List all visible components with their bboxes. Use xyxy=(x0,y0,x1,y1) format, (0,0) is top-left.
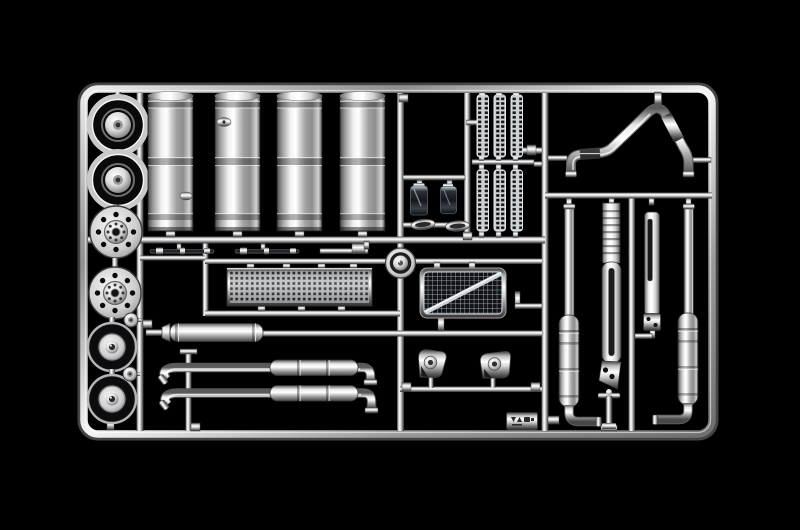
fuel-tank xyxy=(215,92,260,232)
hub-cover xyxy=(90,205,142,258)
fuel-tank xyxy=(277,92,322,232)
fuel-tank xyxy=(340,92,385,232)
fuel-tank xyxy=(148,92,193,232)
radiator-grille xyxy=(420,268,506,318)
step-panel xyxy=(411,183,428,215)
strip-row-top xyxy=(477,95,523,157)
stack-shield-short xyxy=(644,212,661,331)
catwalk-plate xyxy=(227,268,372,306)
chrome-sprue-photo xyxy=(0,0,800,530)
sprue-image xyxy=(0,0,800,530)
mould-tag xyxy=(507,413,538,430)
stack-shield-long xyxy=(599,203,621,389)
tank-end-cap xyxy=(386,248,416,278)
wheel-cover xyxy=(89,151,148,210)
trim-rod xyxy=(150,248,214,255)
strip-row-bottom xyxy=(477,170,523,231)
step-panel xyxy=(441,184,457,214)
horizontal-silencer xyxy=(162,324,263,342)
